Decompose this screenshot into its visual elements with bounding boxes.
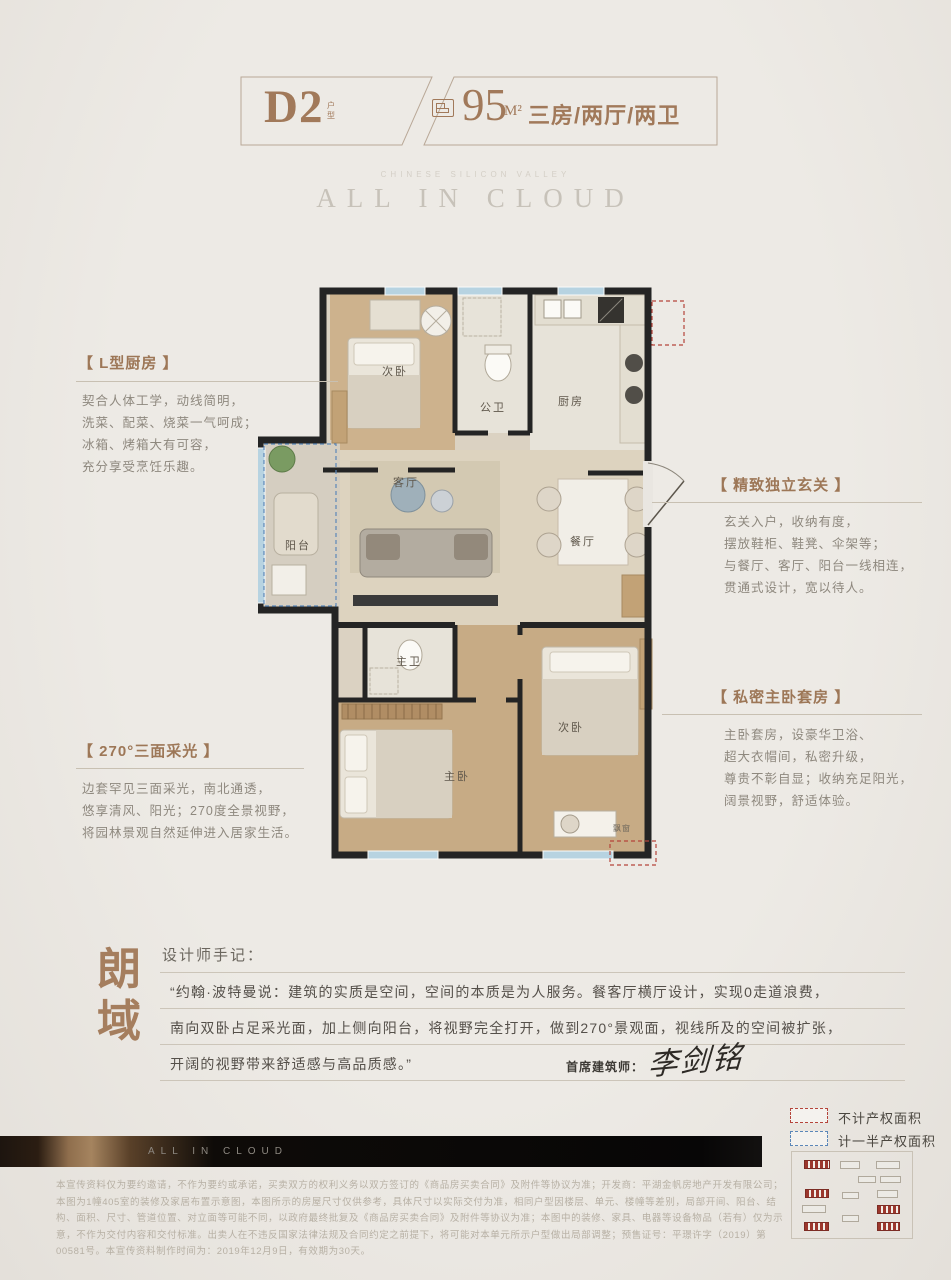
building-footprint [877, 1190, 898, 1198]
room-label: 主卧 [444, 770, 470, 783]
designer-note-line: 开阔的视野带来舒适感与高品质感。” [170, 1054, 412, 1074]
divider [662, 714, 922, 715]
footer-banner [0, 1136, 762, 1167]
building-footprint [842, 1215, 859, 1222]
feature-master: 主卧套房，设豪华卫浴、 超大衣帽间，私密升级， 尊贵不彰自显；收纳充足阳光， 阔… [724, 724, 913, 812]
designer-note-line: “约翰·波特曼说：建筑的实质是空间，空间的本质是为人服务。餐客厅横厅设计，实现0… [170, 982, 829, 1002]
feature-line: 契合人体工学，动线简明， [82, 390, 258, 412]
feature-line: 超大衣帽间，私密升级， [724, 746, 913, 768]
room-label: 主卫 [396, 655, 422, 668]
divider [160, 1044, 905, 1045]
feature-line: 充分享受烹饪乐趣。 [82, 456, 258, 478]
feature-line: 冰箱、烤箱大有可容， [82, 434, 258, 456]
divider [652, 502, 922, 503]
divider [76, 381, 338, 382]
area-number: 95 [462, 79, 507, 131]
entry-door [643, 461, 684, 527]
room-label: 阳台 [285, 538, 311, 552]
feature-title-kitchen: 【 L型厨房 】 [78, 352, 179, 373]
building-footprint [802, 1205, 826, 1213]
architect-label: 首席建筑师： [566, 1058, 644, 1075]
feature-entry: 玄关入户，收纳有度， 摆放鞋柜、鞋凳、伞架等； 与餐厅、客厅、阳台一线相连， 贯… [724, 511, 913, 599]
feature-line: 贯通式设计，宽以待人。 [724, 577, 913, 599]
legend-swatch-red [790, 1108, 828, 1123]
building-footprint [877, 1222, 900, 1231]
feature-line: 尊贵不彰自显；收纳充足阳光， [724, 768, 913, 790]
divider [76, 768, 304, 769]
feature-line: 洗菜、配菜、烧菜一气呵成； [82, 412, 258, 434]
building-footprint [842, 1192, 859, 1199]
room-label: 次卧 [382, 364, 408, 378]
designer-note-heading: 设计师手记： [162, 944, 264, 965]
feature-title-master: 【 私密主卧套房 】 [712, 686, 850, 707]
room-label: 公卫 [480, 402, 506, 414]
legend-label-no-area: 不计产权面积 [838, 1108, 922, 1127]
feature-line: 摆放鞋柜、鞋凳、伞架等； [724, 533, 913, 555]
building-footprint [804, 1160, 830, 1169]
area-unit: M² [504, 103, 522, 120]
building-footprint [805, 1189, 829, 1198]
floorplan-icon [432, 99, 454, 117]
feature-line: 阔景视野，舒适体验。 [724, 790, 913, 812]
feature-kitchen: 契合人体工学，动线简明， 洗菜、配菜、烧菜一气呵成； 冰箱、烤箱大有可容， 充分… [82, 390, 258, 478]
feature-line: 将园林景观自然延伸进入居家生活。 [82, 822, 298, 844]
room-label: 飘窗 [613, 823, 631, 833]
divider [160, 1008, 905, 1009]
feature-line: 与餐厅、客厅、阳台一线相连， [724, 555, 913, 577]
building-footprint [804, 1222, 829, 1231]
room-label: 次卧 [558, 720, 584, 734]
divider [160, 1080, 905, 1081]
disclaimer: 本宣传资料仅为要约邀请，不作为要约或承诺，买卖双方的权利义务以双方签订的《商品房… [56, 1178, 783, 1261]
room-label: 客厅 [393, 475, 419, 489]
rooms-summary: 三房/两厅/两卫 [528, 98, 680, 130]
divider [160, 972, 905, 973]
architect-signature: 李剑铭 [647, 1032, 745, 1085]
feature-title-entry: 【 精致独立玄关 】 [712, 474, 850, 495]
room-label: 餐厅 [570, 534, 596, 548]
disclaimer-line: 00581号。本宣传资料制作时间为：2019年12月9日，有效期为30天。 [56, 1244, 783, 1261]
feature-line: 悠享清风、阳光；270度全景视野， [82, 800, 298, 822]
plan-type-label: 户型 [325, 101, 337, 121]
legend-label-half-area: 计一半产权面积 [838, 1131, 936, 1150]
disclaimer-line: 构、面积、尺寸、管道位置、对立面等可能不同，以政府最终批复及《商品房买卖合同》及… [56, 1211, 783, 1228]
building-footprint [876, 1161, 900, 1169]
plan-code: D2 [264, 80, 323, 134]
disclaimer-line: 意，不作为交付内容和交付标准。出卖人在不违反国家法律法规及合同约定之前提下，将可… [56, 1228, 783, 1245]
room-label: 厨房 [558, 395, 584, 408]
brand-character: 域 [97, 996, 141, 1048]
floorplan: 次卧 公卫 厨房 阳台 客厅 餐厅 主卫 主卧 次卧 飘窗 [258, 283, 688, 873]
building-footprint [880, 1176, 901, 1183]
feature-line: 主卧套房，设豪华卫浴、 [724, 724, 913, 746]
feature-title-light: 【 270°三面采光 】 [78, 740, 219, 761]
footer-banner-text: ALL IN CLOUD [148, 1146, 288, 1157]
disclaimer-line: 本图为1幢405室的装修及家居布置示意图，本图所示的房屋尺寸仅供参考，具体尺寸以… [56, 1195, 783, 1212]
keyplan [791, 1151, 913, 1239]
building-footprint [877, 1205, 900, 1214]
feature-line: 玄关入户，收纳有度， [724, 511, 913, 533]
brand-character: 朗 [97, 944, 141, 996]
disclaimer-line: 本宣传资料仅为要约邀请，不作为要约或承诺，买卖双方的权利义务以双方签订的《商品房… [56, 1178, 783, 1195]
brand-name: ALL IN CLOUD [0, 183, 951, 214]
building-footprint [858, 1176, 876, 1183]
legend-swatch-blue [790, 1131, 828, 1146]
brand-tagline: CHINESE SILICON VALLEY [0, 170, 951, 179]
feature-light: 边套罕见三面采光，南北通透， 悠享清风、阳光；270度全景视野， 将园林景观自然… [82, 778, 298, 844]
building-footprint [840, 1161, 860, 1169]
feature-line: 边套罕见三面采光，南北通透， [82, 778, 298, 800]
